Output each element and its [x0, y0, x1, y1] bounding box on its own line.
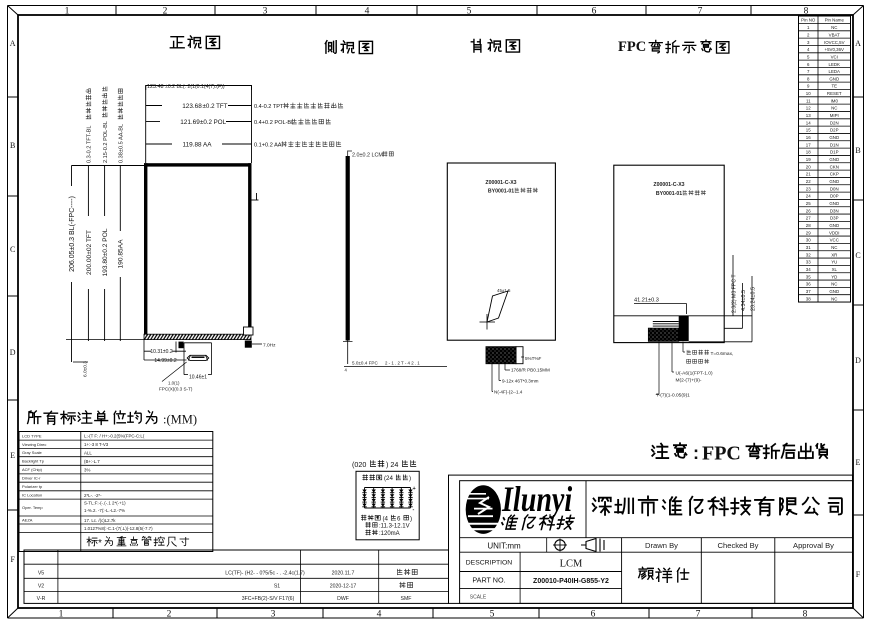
svg-text:*: * — [98, 538, 102, 549]
svg-text:2: 2 — [167, 610, 172, 620]
svg-text:IM0: IM0 — [831, 98, 839, 103]
svg-text:D0P: D0P — [830, 194, 839, 199]
svg-text:XR: XR — [831, 252, 837, 257]
svg-text::120mA: :120mA — [379, 531, 400, 537]
svg-text:8: 8 — [803, 610, 808, 620]
svg-text:FPC(X)(0.3 S-T): FPC(X)(0.3 S-T) — [159, 387, 193, 392]
svg-text:V2: V2 — [38, 584, 44, 590]
svg-text:(4: (4 — [383, 515, 389, 522]
svg-text:V-R: V-R — [37, 596, 46, 602]
svg-text:±0.2 POL: ±0.2 POL — [200, 119, 227, 126]
svg-text:119.88 AA: 119.88 AA — [182, 142, 212, 149]
svg-text:IC Location: IC Location — [22, 493, 42, 498]
svg-text:CKN: CKN — [830, 164, 839, 169]
svg-text:DWF: DWF — [337, 596, 349, 602]
svg-text:0.1+0.2 AA: 0.1+0.2 AA — [254, 143, 282, 149]
svg-text:16: 16 — [806, 135, 811, 140]
svg-text:7: 7 — [696, 610, 701, 620]
svg-text:Z00010-P40IH-G855-Y2: Z00010-P40IH-G855-Y2 — [533, 578, 609, 585]
svg-text:10.46±1: 10.46±1 — [189, 375, 207, 381]
svg-text:7.0Hz: 7.0Hz — [263, 343, 276, 349]
svg-text:2.0±0.2 LCM: 2.0±0.2 LCM — [352, 153, 383, 159]
svg-text:YU: YU — [831, 260, 837, 265]
svg-text:1.0(1): 1.0(1) — [168, 381, 180, 386]
svg-text:±0.2 TFT: ±0.2 TFT — [203, 103, 228, 110]
svg-text:18: 18 — [806, 150, 811, 155]
svg-text:Driver IC-r: Driver IC-r — [22, 476, 41, 481]
svg-text:UNIT:mm: UNIT:mm — [487, 541, 521, 550]
svg-text:NC: NC — [831, 282, 837, 287]
svg-text:A: A — [855, 39, 861, 48]
svg-text:MIPI: MIPI — [830, 113, 839, 118]
svg-text:F: F — [856, 570, 861, 579]
svg-text:28: 28 — [806, 223, 811, 228]
svg-text:D2N: D2N — [830, 120, 839, 125]
svg-text:U(-A6(1(FPT-1.0): U(-A6(1(FPT-1.0) — [676, 371, 713, 377]
svg-text:25: 25 — [806, 201, 811, 206]
svg-text:Drawn By: Drawn By — [645, 541, 678, 550]
svg-text:34: 34 — [806, 267, 811, 272]
svg-text:LEDA: LEDA — [829, 69, 841, 74]
svg-text:206.05±0.3 BL(-FPC----): 206.05±0.3 BL(-FPC----) — [69, 196, 76, 272]
svg-text:Viewing Direc: Viewing Direc — [22, 442, 46, 447]
svg-text:190.85AA: 190.85AA — [118, 239, 125, 269]
svg-text:GND: GND — [829, 201, 839, 206]
svg-text:Ilunyi: Ilunyi — [501, 479, 572, 519]
svg-text:32: 32 — [806, 252, 811, 257]
svg-text:LCM: LCM — [560, 559, 583, 570]
svg-text:14: 14 — [806, 120, 811, 125]
svg-text:123.48: 123.48 — [147, 84, 164, 90]
svg-text:0.4-0.2 TPT: 0.4-0.2 TPT — [254, 104, 284, 110]
svg-text:NC: NC — [831, 25, 837, 30]
svg-text:0.38±0.5 AA-BL: 0.38±0.5 AA-BL — [119, 124, 125, 163]
svg-text:) 24: ) 24 — [386, 460, 398, 469]
svg-text:37: 37 — [806, 289, 811, 294]
svg-text:N(-4F)-(2--1.4: N(-4F)-(2--1.4 — [494, 390, 523, 395]
svg-text:200.00±02 TFT: 200.00±02 TFT — [86, 230, 93, 275]
svg-text:NC: NC — [831, 106, 837, 111]
svg-text:BY0001-01: BY0001-01 — [656, 191, 682, 197]
svg-text:2*L-. -2*-: 2*L-. -2*- — [84, 493, 102, 498]
svg-text:LCD TYPE: LCD TYPE — [22, 433, 42, 438]
svg-text:35: 35 — [806, 274, 811, 279]
svg-text:D2P: D2P — [830, 128, 839, 133]
svg-text:3: 3 — [263, 7, 268, 17]
svg-text:3FC+FB(2)-S/V F17(6): 3FC+FB(2)-S/V F17(6) — [242, 596, 295, 602]
svg-text:5: 5 — [490, 610, 495, 620]
svg-text:ACF (Chip): ACF (Chip) — [22, 467, 43, 472]
svg-text:D3N: D3N — [830, 208, 839, 213]
svg-text:T=0.6max,: T=0.6max, — [711, 351, 734, 357]
svg-text:2020.11.7: 2020.11.7 — [332, 571, 355, 577]
svg-text:123.68: 123.68 — [182, 103, 202, 110]
svg-text:Z00001-C-X3: Z00001-C-X3 — [485, 180, 516, 186]
svg-text:): ) — [409, 475, 411, 482]
svg-text:M(2-(7)+(9)-: M(2-(7)+(9)- — [676, 378, 702, 384]
svg-text:FPC: FPC — [618, 39, 646, 55]
svg-text:SMF: SMF — [401, 596, 412, 602]
svg-text:E: E — [10, 451, 15, 460]
svg-text:15: 15 — [806, 128, 811, 133]
svg-text:GND: GND — [829, 76, 839, 81]
svg-text:L:-(T F: / H+:-0.2(5%(FPC-C:L: L:-(T F: / H+:-0.2(5%(FPC-C:L( — [84, 434, 145, 439]
svg-text:SCALE: SCALE — [470, 595, 487, 601]
svg-text:DESCRIPTION: DESCRIPTION — [466, 560, 513, 567]
svg-text:2020-12-17: 2020-12-17 — [330, 584, 357, 590]
svg-text:A: A — [10, 39, 16, 48]
svg-text:31: 31 — [806, 245, 811, 250]
svg-text:NC: NC — [831, 245, 837, 250]
svg-text:CKP: CKP — [830, 172, 839, 177]
svg-text:41.21±0.3: 41.21±0.3 — [634, 298, 659, 304]
svg-text:2 - 1 . 2 T - 4 2 . 1: 2 - 1 . 2 T - 4 2 . 1 — [385, 361, 420, 366]
svg-text:PART NO.: PART NO. — [472, 576, 505, 585]
svg-text:LEDK: LEDK — [829, 62, 841, 67]
svg-text:±0.2 BL(: 2(1(0.1(4(7).(F)): ±0.2 BL(: 2(1(0.1(4(7).(F)) — [165, 84, 225, 90]
svg-text:36: 36 — [806, 282, 811, 287]
svg-text:Oper. Temp: Oper. Temp — [22, 505, 43, 510]
svg-text:TE: TE — [831, 84, 837, 89]
svg-text:Z00001-C-X3: Z00001-C-X3 — [653, 182, 684, 188]
svg-text:B: B — [855, 146, 860, 155]
svg-text:3: 3 — [271, 610, 276, 620]
svg-text:6: 6 — [592, 7, 597, 17]
svg-text:27: 27 — [806, 216, 811, 221]
svg-text:38: 38 — [806, 296, 811, 301]
svg-text:FPC: FPC — [702, 443, 741, 465]
svg-text:23.24±0.5: 23.24±0.5 — [750, 287, 756, 311]
svg-text:D0N: D0N — [830, 186, 839, 191]
svg-text:22: 22 — [806, 179, 811, 184]
svg-text:10: 10 — [806, 91, 811, 96]
svg-text:T-(7)(1-0.05(9)1: T-(7)(1-0.05(9)1 — [656, 393, 690, 399]
svg-text:1: 1 — [59, 610, 64, 620]
svg-text:1768/R PB0.15MM: 1768/R PB0.15MM — [511, 368, 550, 373]
svg-text:6: 6 — [591, 610, 596, 620]
svg-text:GND: GND — [829, 157, 839, 162]
svg-text:D1P: D1P — [830, 150, 839, 155]
svg-text:30: 30 — [806, 238, 811, 243]
svg-text:3%: 3% — [84, 467, 90, 472]
svg-text:): ) — [410, 515, 412, 522]
svg-text:S1: S1 — [274, 584, 280, 590]
svg-text:5%T%F: 5%T%F — [525, 356, 542, 361]
svg-text:D1N: D1N — [830, 142, 839, 147]
svg-text:(24: (24 — [384, 475, 394, 482]
svg-text:2.15-0.2 POL-BL: 2.15-0.2 POL-BL — [103, 121, 109, 163]
svg-text:121.69: 121.69 — [180, 119, 200, 126]
svg-text:(020: (020 — [352, 460, 366, 469]
svg-text:D: D — [855, 356, 861, 365]
svg-text:E: E — [856, 458, 861, 467]
svg-text:2: 2 — [163, 7, 168, 17]
svg-text:33: 33 — [806, 260, 811, 265]
svg-text:5: 5 — [467, 7, 472, 17]
svg-text:ALL: ALL — [84, 450, 92, 455]
svg-text:LC(TF)- (H2- - 0?5/5c - . -2.4: LC(TF)- (H2- - 0?5/5c - . -2.4c(1.7) — [225, 571, 305, 577]
svg-text:0.4+0.2 POL-BL: 0.4+0.2 POL-BL — [254, 120, 294, 126]
svg-text:(B+:-L.7: (B+:-L.7 — [84, 459, 100, 464]
svg-text:10.31±0.2: 10.31±0.2 — [150, 349, 172, 355]
svg-text:-: - — [413, 507, 415, 513]
svg-text:0.3-0.2 TFT-BL: 0.3-0.2 TFT-BL — [87, 125, 93, 163]
svg-text:C: C — [10, 245, 15, 254]
svg-text:+5V0,36V: +5V0,36V — [825, 47, 844, 52]
svg-text:1: 1 — [65, 7, 70, 17]
svg-text:Approval By: Approval By — [793, 541, 834, 550]
svg-text:Backlight Tp: Backlight Tp — [22, 459, 45, 464]
svg-text:29: 29 — [806, 230, 811, 235]
svg-text:23: 23 — [806, 186, 811, 191]
svg-text:8: 8 — [804, 7, 809, 17]
svg-text:C: C — [855, 251, 860, 260]
svg-text:YD: YD — [831, 274, 837, 279]
svg-text:Pin NO: Pin NO — [801, 18, 816, 23]
svg-text:BY0001-01: BY0001-01 — [488, 189, 514, 195]
svg-text:5.0±0.4 FPC: 5.0±0.4 FPC — [352, 361, 378, 366]
svg-text::(MM): :(MM) — [163, 413, 197, 427]
svg-text:21: 21 — [806, 172, 811, 177]
svg-text:2.3(2) M3 FPC T: 2.3(2) M3 FPC T — [731, 274, 737, 313]
svg-text:14.99±0.2: 14.99±0.2 — [154, 358, 176, 364]
svg-text:6: 6 — [397, 515, 401, 522]
svg-text:GND: GND — [829, 223, 839, 228]
svg-text:VDDI: VDDI — [829, 230, 840, 235]
svg-text:VCC: VCC — [830, 238, 839, 243]
svg-text:D: D — [10, 348, 16, 357]
svg-text:AEZA: AEZA — [22, 518, 33, 523]
svg-text:4: 4 — [377, 610, 382, 620]
svg-text:F: F — [10, 555, 15, 564]
svg-text::11.3-12.1V: :11.3-12.1V — [379, 523, 410, 529]
svg-text:1+:-3 8 T-V3: 1+:-3 8 T-V3 — [84, 442, 109, 447]
svg-text:Polarizer tp: Polarizer tp — [22, 484, 43, 489]
svg-text:7: 7 — [698, 7, 703, 17]
svg-text:45±1.5: 45±1.5 — [497, 288, 511, 293]
svg-text:Checked By: Checked By — [718, 541, 759, 550]
svg-text:11: 11 — [806, 98, 811, 103]
svg-text:13: 13 — [806, 113, 811, 118]
svg-text:4.34±0.5: 4.34±0.5 — [741, 290, 747, 311]
svg-text:V5: V5 — [38, 571, 44, 577]
svg-text:VCI: VCI — [831, 54, 838, 59]
svg-text:B: B — [10, 141, 15, 150]
svg-text:12: 12 — [806, 106, 811, 111]
svg-text:VBAT: VBAT — [829, 32, 840, 37]
svg-text:20: 20 — [806, 164, 811, 169]
svg-text:Pin Name: Pin Name — [825, 18, 845, 23]
svg-text:GND: GND — [829, 135, 839, 140]
svg-text:24: 24 — [806, 194, 811, 199]
svg-text:GND: GND — [829, 179, 839, 184]
svg-text:4: 4 — [365, 7, 370, 17]
svg-text:D3P: D3P — [830, 216, 839, 221]
svg-text:193.80±0.2 POL: 193.80±0.2 POL — [102, 228, 109, 276]
svg-text:S-TL:F:-(-.(-.1 2*(-+1): S-TL:F:-(-.(-.1 2*(-+1) — [84, 501, 126, 506]
svg-text:IOVCC,5V: IOVCC,5V — [824, 40, 845, 45]
svg-text:RESET: RESET — [827, 91, 842, 96]
svg-text:26: 26 — [806, 208, 811, 213]
svg-text:+: + — [413, 486, 416, 492]
svg-text:9-12x 46T*0.3mm: 9-12x 46T*0.3mm — [502, 379, 539, 384]
svg-text:1-%.2. -7(:-L.-L2.-7%: 1-%.2. -7(:-L.-L2.-7% — [84, 508, 125, 513]
svg-text::: : — [693, 443, 699, 463]
svg-text:XL: XL — [832, 267, 838, 272]
svg-text:Gray Scale: Gray Scale — [22, 450, 43, 455]
svg-text:17. Lc. /(c)L2.7k: 17. Lc. /(c)L2.7k — [84, 518, 116, 523]
svg-text:1.0127%8(:-C.1-(7(.L)(-12.8(5(: 1.0127%8(:-C.1-(7(.L)(-12.8(5(-7.7) — [84, 526, 153, 531]
svg-text:19: 19 — [806, 157, 811, 162]
svg-text:6.0±0.3: 6.0±0.3 — [83, 361, 89, 377]
svg-text:NC: NC — [831, 296, 837, 301]
svg-text:GND: GND — [829, 289, 839, 294]
svg-text:17: 17 — [806, 142, 811, 147]
